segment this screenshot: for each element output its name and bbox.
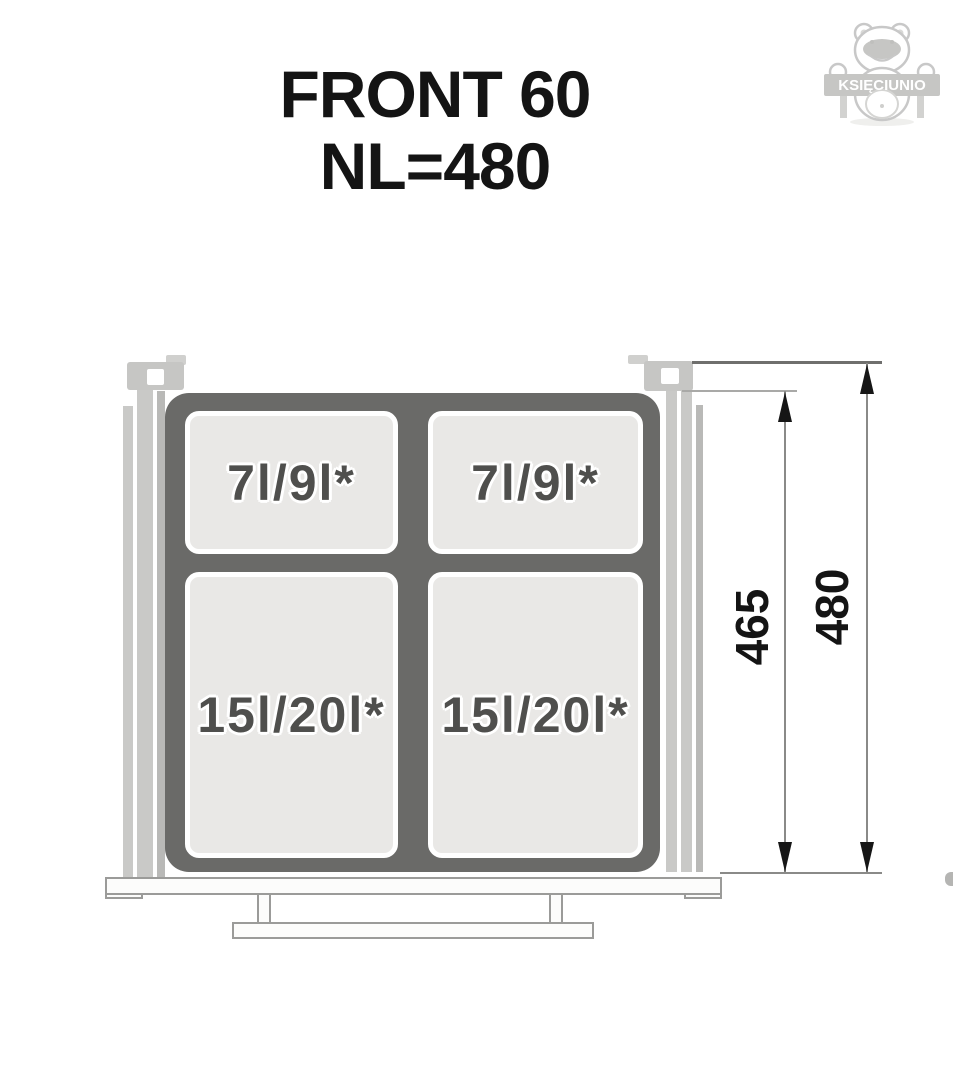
diagram-title: FRONT 60 NL=480 [115, 58, 755, 202]
bear-navel [880, 104, 884, 108]
base-plate [105, 877, 722, 895]
extension-line-bottom [720, 872, 882, 874]
dimension-value-465: 465 [722, 567, 782, 687]
compartment-label: 15l/20l* [197, 686, 385, 744]
dimension-line-480 [866, 363, 868, 873]
dimension-value-480: 480 [802, 547, 862, 667]
arrowhead-480-bottom [860, 842, 874, 872]
arrowhead-480-top [860, 364, 874, 394]
compartment-top-left: 7l/9l* [185, 411, 398, 554]
bear-muzzle [863, 39, 901, 59]
compartment-label: 15l/20l* [441, 686, 629, 744]
sign-leg-left [840, 96, 847, 118]
right-bracket-hole [661, 368, 679, 384]
right-rail-bar-a [666, 391, 677, 872]
watermark-text: KSIĘCIUNIO [838, 77, 926, 94]
left-rail-main-bar [137, 389, 153, 877]
left-rail-inner-bar [157, 391, 165, 877]
watermark-logo: KSIĘCIUNIO [816, 18, 948, 130]
sign-leg-right [917, 96, 924, 118]
title-line-front: FRONT 60 [115, 58, 755, 130]
compartment-label: 7l/9l* [471, 454, 600, 512]
left-bracket-hole [147, 369, 164, 385]
right-rail-bar-b [681, 391, 692, 872]
compartment-top-right: 7l/9l* [428, 411, 643, 554]
extension-line-480-top [692, 361, 882, 364]
bottom-mount-bar [232, 922, 594, 939]
compartment-bottom-left: 15l/20l* [185, 572, 398, 858]
compartment-label: 7l/9l* [227, 454, 356, 512]
right-edge-mark [945, 872, 953, 886]
arrowhead-465-top [778, 392, 792, 422]
bear-eye-right [890, 40, 894, 44]
right-rail-bar-c [696, 405, 703, 872]
compartment-bottom-right: 15l/20l* [428, 572, 643, 858]
dimension-line-465 [784, 391, 786, 873]
left-rail-outer-bar [123, 406, 133, 877]
arrowhead-465-bottom [778, 842, 792, 872]
mount-post-left [257, 893, 271, 924]
mount-post-right [549, 893, 563, 924]
title-line-nl: NL=480 [115, 130, 755, 202]
bear-eye-left [870, 40, 874, 44]
